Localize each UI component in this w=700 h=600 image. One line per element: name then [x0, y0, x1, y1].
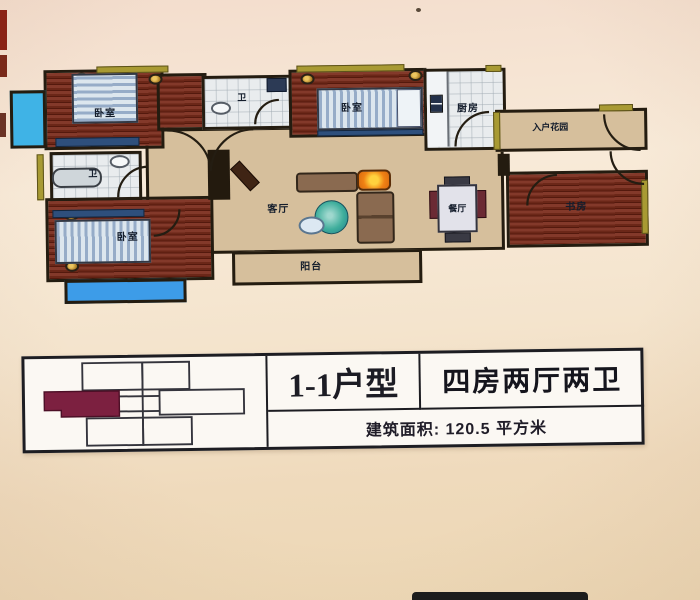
window-accent — [485, 65, 501, 72]
photo-speck — [416, 8, 421, 12]
label-entry-garden: 入户花园 — [505, 123, 595, 133]
next-box-edge — [412, 592, 588, 600]
photo-of-floorplan: { "plan": { "rooms": { "bedroom_a": { "l… — [0, 0, 700, 600]
room-closet — [156, 73, 207, 131]
sofa — [356, 191, 395, 244]
tv-wall — [208, 150, 231, 200]
window-bottom — [64, 278, 186, 304]
key-plan — [31, 357, 260, 450]
highlighted-unit — [44, 390, 119, 416]
unit-type-text: 1-1户型 — [288, 357, 399, 407]
area-cell: 建筑面积: 120.5 平方米 — [268, 407, 644, 447]
layout-text: 四房两厅两卫 — [442, 358, 623, 401]
label-bedroom-top-left: 卧室 — [80, 109, 130, 120]
photo-edge-mark — [0, 113, 6, 137]
label-balcony: 阳台 — [283, 262, 339, 273]
pillows — [397, 89, 422, 127]
window-accent — [599, 104, 633, 111]
stove — [430, 95, 443, 113]
sofa — [296, 172, 358, 193]
floor-lamp — [357, 169, 391, 190]
window-accent — [296, 64, 404, 73]
label-living: 客厅 — [250, 205, 306, 216]
label-bath-top: 卫 — [227, 93, 257, 102]
wall-stub — [498, 154, 510, 176]
window-accent — [641, 180, 649, 234]
window-left — [10, 90, 47, 148]
photo-edge-mark — [0, 55, 7, 77]
unit-type-cell: 1-1户型 — [267, 354, 421, 412]
dining-chair — [445, 232, 471, 242]
window-accent — [493, 112, 501, 150]
info-table: 1-1户型 四房两厅两卫 建筑面积: 120.5 平方米 — [21, 348, 644, 454]
layout-cell: 四房两厅两卫 — [420, 351, 644, 410]
label-dining: 餐厅 — [435, 204, 479, 214]
key-plan-cell — [24, 356, 268, 450]
label-bedroom-middle: 卧室 — [327, 104, 377, 115]
bath-cabinet — [267, 78, 287, 92]
floor-plan: 卧室 卫 卧室 卫 卧室 厨房 入户花园 客厅 餐厅 书房 阳台 — [38, 52, 653, 311]
label-bath-left: 卫 — [78, 169, 108, 178]
rug — [55, 137, 139, 147]
rug — [52, 209, 144, 218]
area-text: 建筑面积: 120.5 平方米 — [366, 414, 548, 441]
label-study: 书房 — [548, 202, 604, 213]
photo-edge-mark — [0, 10, 7, 50]
label-kitchen: 厨房 — [443, 104, 493, 115]
window-accent — [37, 154, 45, 200]
label-bedroom-bottom-left: 卧室 — [103, 233, 153, 244]
